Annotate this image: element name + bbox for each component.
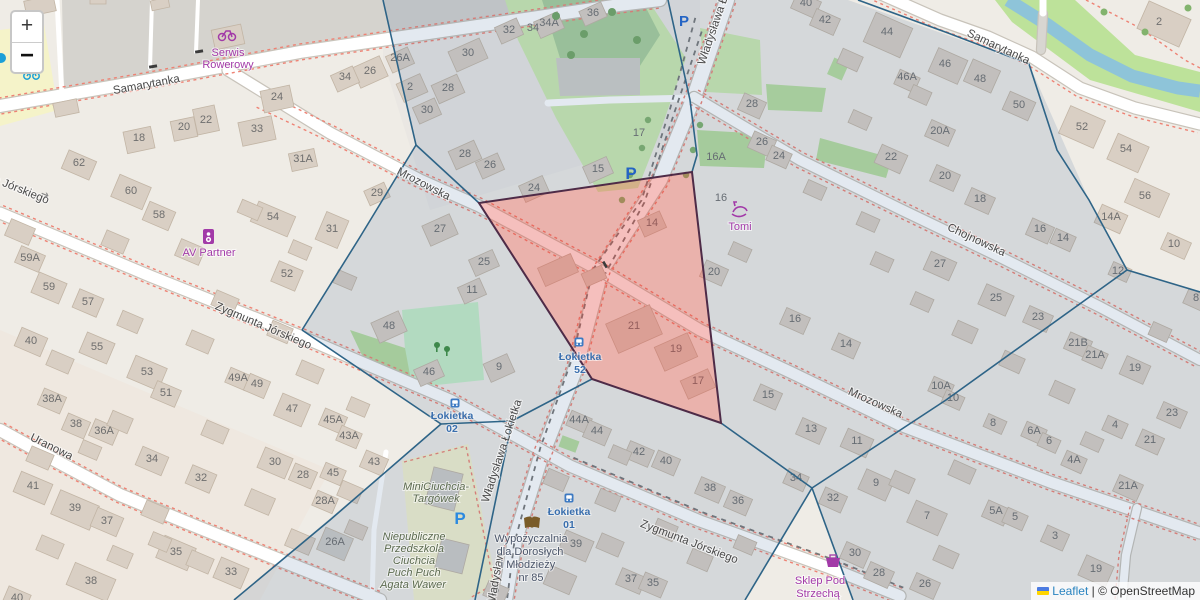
svg-text:Ciuchcia: Ciuchcia <box>393 555 435 567</box>
svg-text:P: P <box>679 13 689 30</box>
svg-text:Targówek: Targówek <box>412 493 460 505</box>
svg-text:43: 43 <box>368 456 380 468</box>
svg-text:58: 58 <box>153 209 165 221</box>
svg-text:53: 53 <box>141 366 153 378</box>
svg-text:40: 40 <box>25 335 37 347</box>
svg-text:24: 24 <box>271 91 283 103</box>
svg-text:49: 49 <box>251 378 263 390</box>
svg-text:52: 52 <box>574 364 586 376</box>
svg-text:32: 32 <box>195 472 207 484</box>
svg-text:31: 31 <box>326 223 338 235</box>
svg-text:33: 33 <box>251 123 263 135</box>
svg-text:Strzechą: Strzechą <box>796 588 840 600</box>
svg-text:02: 02 <box>446 423 458 435</box>
svg-text:33: 33 <box>225 566 237 578</box>
svg-text:Puch Puch: Puch Puch <box>387 567 440 579</box>
svg-text:55: 55 <box>91 341 103 353</box>
svg-text:37: 37 <box>101 515 113 527</box>
svg-text:AV Partner: AV Partner <box>183 247 236 259</box>
svg-text:36A: 36A <box>94 425 114 437</box>
svg-text:2: 2 <box>1156 16 1162 28</box>
svg-text:18: 18 <box>133 132 145 144</box>
svg-text:Tomi: Tomi <box>728 221 751 233</box>
svg-text:14A: 14A <box>1101 211 1121 223</box>
svg-text:54: 54 <box>267 211 279 223</box>
svg-text:20: 20 <box>178 121 190 133</box>
svg-text:P: P <box>625 164 636 183</box>
svg-text:nr 85: nr 85 <box>518 572 543 584</box>
svg-text:Łokietka: Łokietka <box>548 506 591 518</box>
svg-text:59A: 59A <box>20 252 40 264</box>
svg-text:28: 28 <box>297 469 309 481</box>
svg-text:47: 47 <box>286 403 298 415</box>
svg-text:Wypożyczalnia: Wypożyczalnia <box>494 533 568 545</box>
svg-text:34: 34 <box>146 453 158 465</box>
svg-text:59: 59 <box>43 281 55 293</box>
svg-text:29: 29 <box>371 187 383 199</box>
svg-text:41: 41 <box>27 480 39 492</box>
svg-text:35: 35 <box>170 546 182 558</box>
svg-text:40: 40 <box>11 592 23 600</box>
svg-text:28A: 28A <box>315 495 335 507</box>
svg-text:52: 52 <box>1076 121 1088 133</box>
svg-text:Łokietka: Łokietka <box>559 351 602 363</box>
svg-text:39: 39 <box>69 502 81 514</box>
svg-text:dla Dorosłych: dla Dorosłych <box>497 546 564 558</box>
svg-text:30: 30 <box>269 456 281 468</box>
svg-text:i Młodzieży: i Młodzieży <box>501 559 556 571</box>
svg-text:34: 34 <box>339 71 351 83</box>
svg-text:Agata Wawer: Agata Wawer <box>379 579 447 591</box>
svg-text:45: 45 <box>327 467 339 479</box>
svg-text:38A: 38A <box>42 393 62 405</box>
svg-text:26: 26 <box>364 65 376 77</box>
svg-text:MiniCiuchcia-: MiniCiuchcia- <box>403 481 469 493</box>
svg-text:Sklep Pod: Sklep Pod <box>795 575 845 587</box>
svg-text:Łokietka: Łokietka <box>431 410 474 422</box>
svg-text:57: 57 <box>82 296 94 308</box>
svg-text:43A: 43A <box>339 430 359 442</box>
svg-text:52: 52 <box>281 268 293 280</box>
svg-text:10: 10 <box>1168 238 1180 250</box>
svg-text:22: 22 <box>200 114 212 126</box>
svg-text:Przedszkola: Przedszkola <box>384 543 444 555</box>
svg-text:Serwis: Serwis <box>211 47 245 59</box>
svg-text:51: 51 <box>160 387 172 399</box>
svg-text:56: 56 <box>1139 190 1151 202</box>
svg-text:38: 38 <box>85 575 97 587</box>
svg-text:P: P <box>454 509 465 528</box>
svg-text:62: 62 <box>73 157 85 169</box>
svg-text:01: 01 <box>563 519 575 531</box>
svg-text:Niepubliczne: Niepubliczne <box>383 531 446 543</box>
svg-text:38: 38 <box>70 418 82 430</box>
svg-text:54: 54 <box>1120 143 1132 155</box>
svg-text:49A: 49A <box>228 372 248 384</box>
svg-text:31A: 31A <box>293 153 313 165</box>
svg-text:Rowerowy: Rowerowy <box>202 59 254 71</box>
svg-text:45A: 45A <box>323 414 343 426</box>
svg-text:60: 60 <box>125 185 137 197</box>
